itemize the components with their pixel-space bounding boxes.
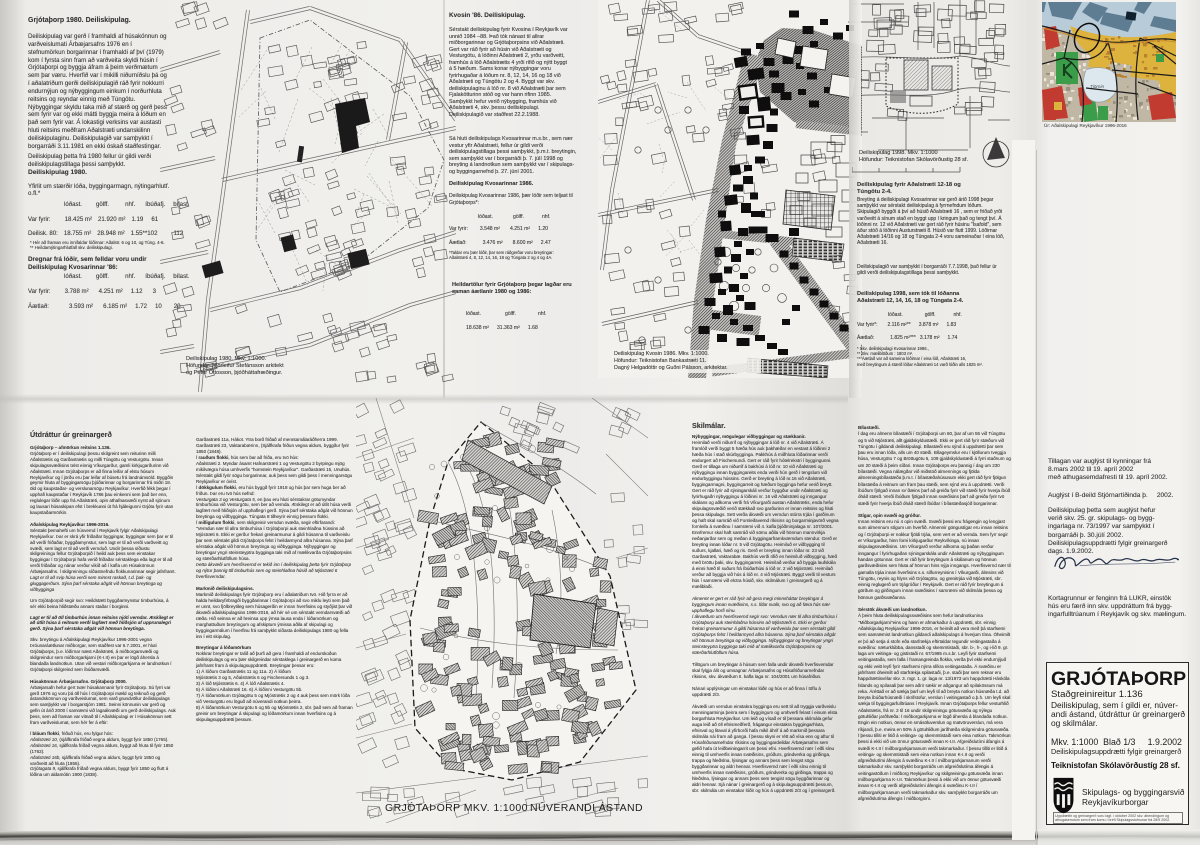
svg-text:NÚVERANDI ÁSTAND: NÚVERANDI ÁSTAND — [530, 801, 643, 814]
svg-text:GRJÓTAÞORP MKV. 1:1000: GRJÓTAÞORP MKV. 1:1000 — [385, 801, 528, 814]
